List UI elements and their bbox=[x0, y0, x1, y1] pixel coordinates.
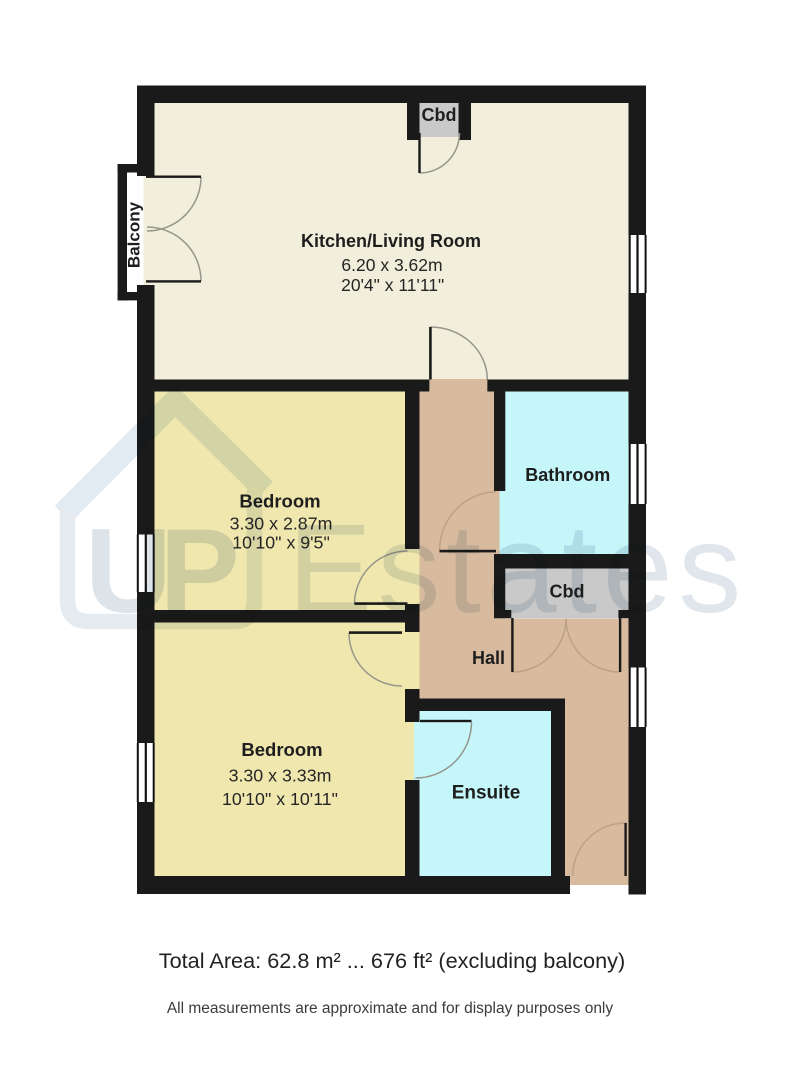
svg-text:Kitchen/Living Room: Kitchen/Living Room bbox=[301, 231, 481, 251]
svg-text:20'4" x 11'11": 20'4" x 11'11" bbox=[341, 275, 444, 295]
svg-text:All measurements are approxima: All measurements are approximate and for… bbox=[167, 1000, 614, 1017]
svg-text:10'10" x 10'11": 10'10" x 10'11" bbox=[222, 789, 338, 809]
svg-text:Total Area: 62.8 m² ... 676 ft: Total Area: 62.8 m² ... 676 ft² (excludi… bbox=[159, 948, 626, 973]
svg-text:Balcony: Balcony bbox=[125, 201, 144, 268]
svg-text:Bedroom: Bedroom bbox=[241, 739, 322, 760]
svg-text:6.20 x 3.62m: 6.20 x 3.62m bbox=[341, 255, 442, 275]
svg-text:Estates: Estates bbox=[288, 498, 747, 639]
svg-text:3.30 x 3.33m: 3.30 x 3.33m bbox=[229, 766, 332, 786]
svg-text:Bathroom: Bathroom bbox=[525, 465, 610, 485]
svg-text:UP: UP bbox=[85, 504, 236, 638]
svg-text:Hall: Hall bbox=[472, 648, 505, 668]
svg-text:Cbd: Cbd bbox=[422, 105, 457, 125]
svg-text:Ensuite: Ensuite bbox=[452, 783, 521, 804]
